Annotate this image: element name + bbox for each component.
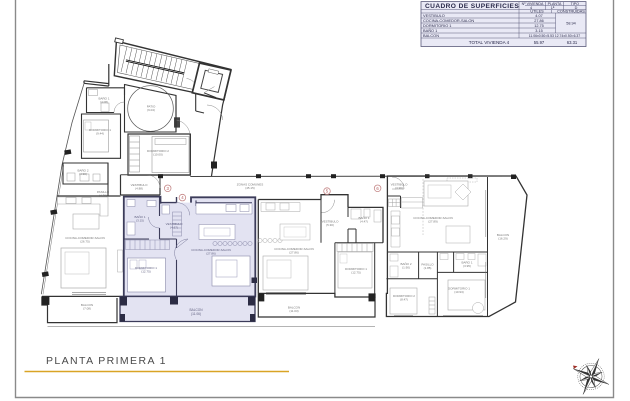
svg-text:(3.15): (3.15) — [136, 219, 144, 223]
svg-text:(4.08): (4.08) — [100, 100, 108, 104]
svg-text:12.75: 12.75 — [534, 24, 544, 28]
svg-text:(5.30): (5.30) — [326, 223, 334, 227]
svg-text:4.07: 4.07 — [535, 14, 542, 18]
svg-text:27.86: 27.86 — [534, 19, 544, 23]
svg-text:(27.86): (27.86) — [206, 252, 216, 256]
svg-text:(27.89): (27.89) — [428, 220, 438, 224]
svg-text:(26.75): (26.75) — [80, 240, 90, 244]
svg-text:(1.90): (1.90) — [402, 266, 410, 270]
svg-text:(27.86): (27.86) — [289, 251, 299, 255]
svg-text:(4.88): (4.88) — [135, 187, 143, 191]
svg-text:(12.75): (12.75) — [141, 270, 151, 274]
svg-text:(12.75): (12.75) — [351, 271, 361, 275]
svg-text:(3.95): (3.95) — [463, 264, 471, 268]
svg-text:(10.93): (10.93) — [454, 290, 464, 294]
svg-text:CONSTRUIDAS: CONSTRUIDAS — [557, 9, 585, 13]
svg-text:Nº VIVIENDA: Nº VIVIENDA — [522, 2, 544, 6]
svg-text:1ª: 1ª — [551, 6, 555, 10]
svg-text:BALCON: BALCON — [423, 33, 439, 38]
svg-text:PLANTA PRIMERA 1: PLANTA PRIMERA 1 — [46, 355, 167, 367]
svg-text:(10.00): (10.00) — [153, 153, 163, 157]
svg-text:55.97: 55.97 — [534, 40, 545, 45]
svg-text:(11.06): (11.06) — [191, 312, 201, 316]
svg-text:TOTAL VIVIENDA 4: TOTAL VIVIENDA 4 — [469, 40, 510, 45]
svg-text:3.15: 3.15 — [535, 29, 542, 33]
svg-text:11.06x0.50=5.53 12.74x0.50=6.3: 11.06x0.50=5.53 12.74x0.50=6.37 — [529, 34, 581, 38]
svg-text:CUADRO DE SUPERFICIES: CUADRO DE SUPERFICIES — [425, 3, 519, 10]
svg-text:(3.96): (3.96) — [395, 186, 403, 190]
svg-text:(4.67): (4.67) — [170, 226, 178, 230]
svg-text:(4.90): (4.90) — [79, 172, 87, 176]
svg-text:(9.04): (9.04) — [147, 108, 155, 112]
svg-text:58.94: 58.94 — [566, 22, 576, 26]
svg-text:63.31: 63.31 — [567, 40, 578, 45]
svg-text:(16.29): (16.29) — [498, 237, 508, 241]
svg-text:(11.03): (11.03) — [289, 309, 298, 313]
svg-text:(7.08): (7.08) — [83, 307, 91, 311]
svg-text:(8.47): (8.47) — [400, 298, 408, 302]
svg-text:(45.15): (45.15) — [245, 186, 255, 190]
svg-text:UTILES: UTILES — [530, 9, 544, 13]
svg-text:(1.85): (1.85) — [424, 266, 432, 270]
svg-text:(9.44): (9.44) — [96, 132, 104, 136]
svg-text:(4.47): (4.47) — [360, 220, 368, 224]
